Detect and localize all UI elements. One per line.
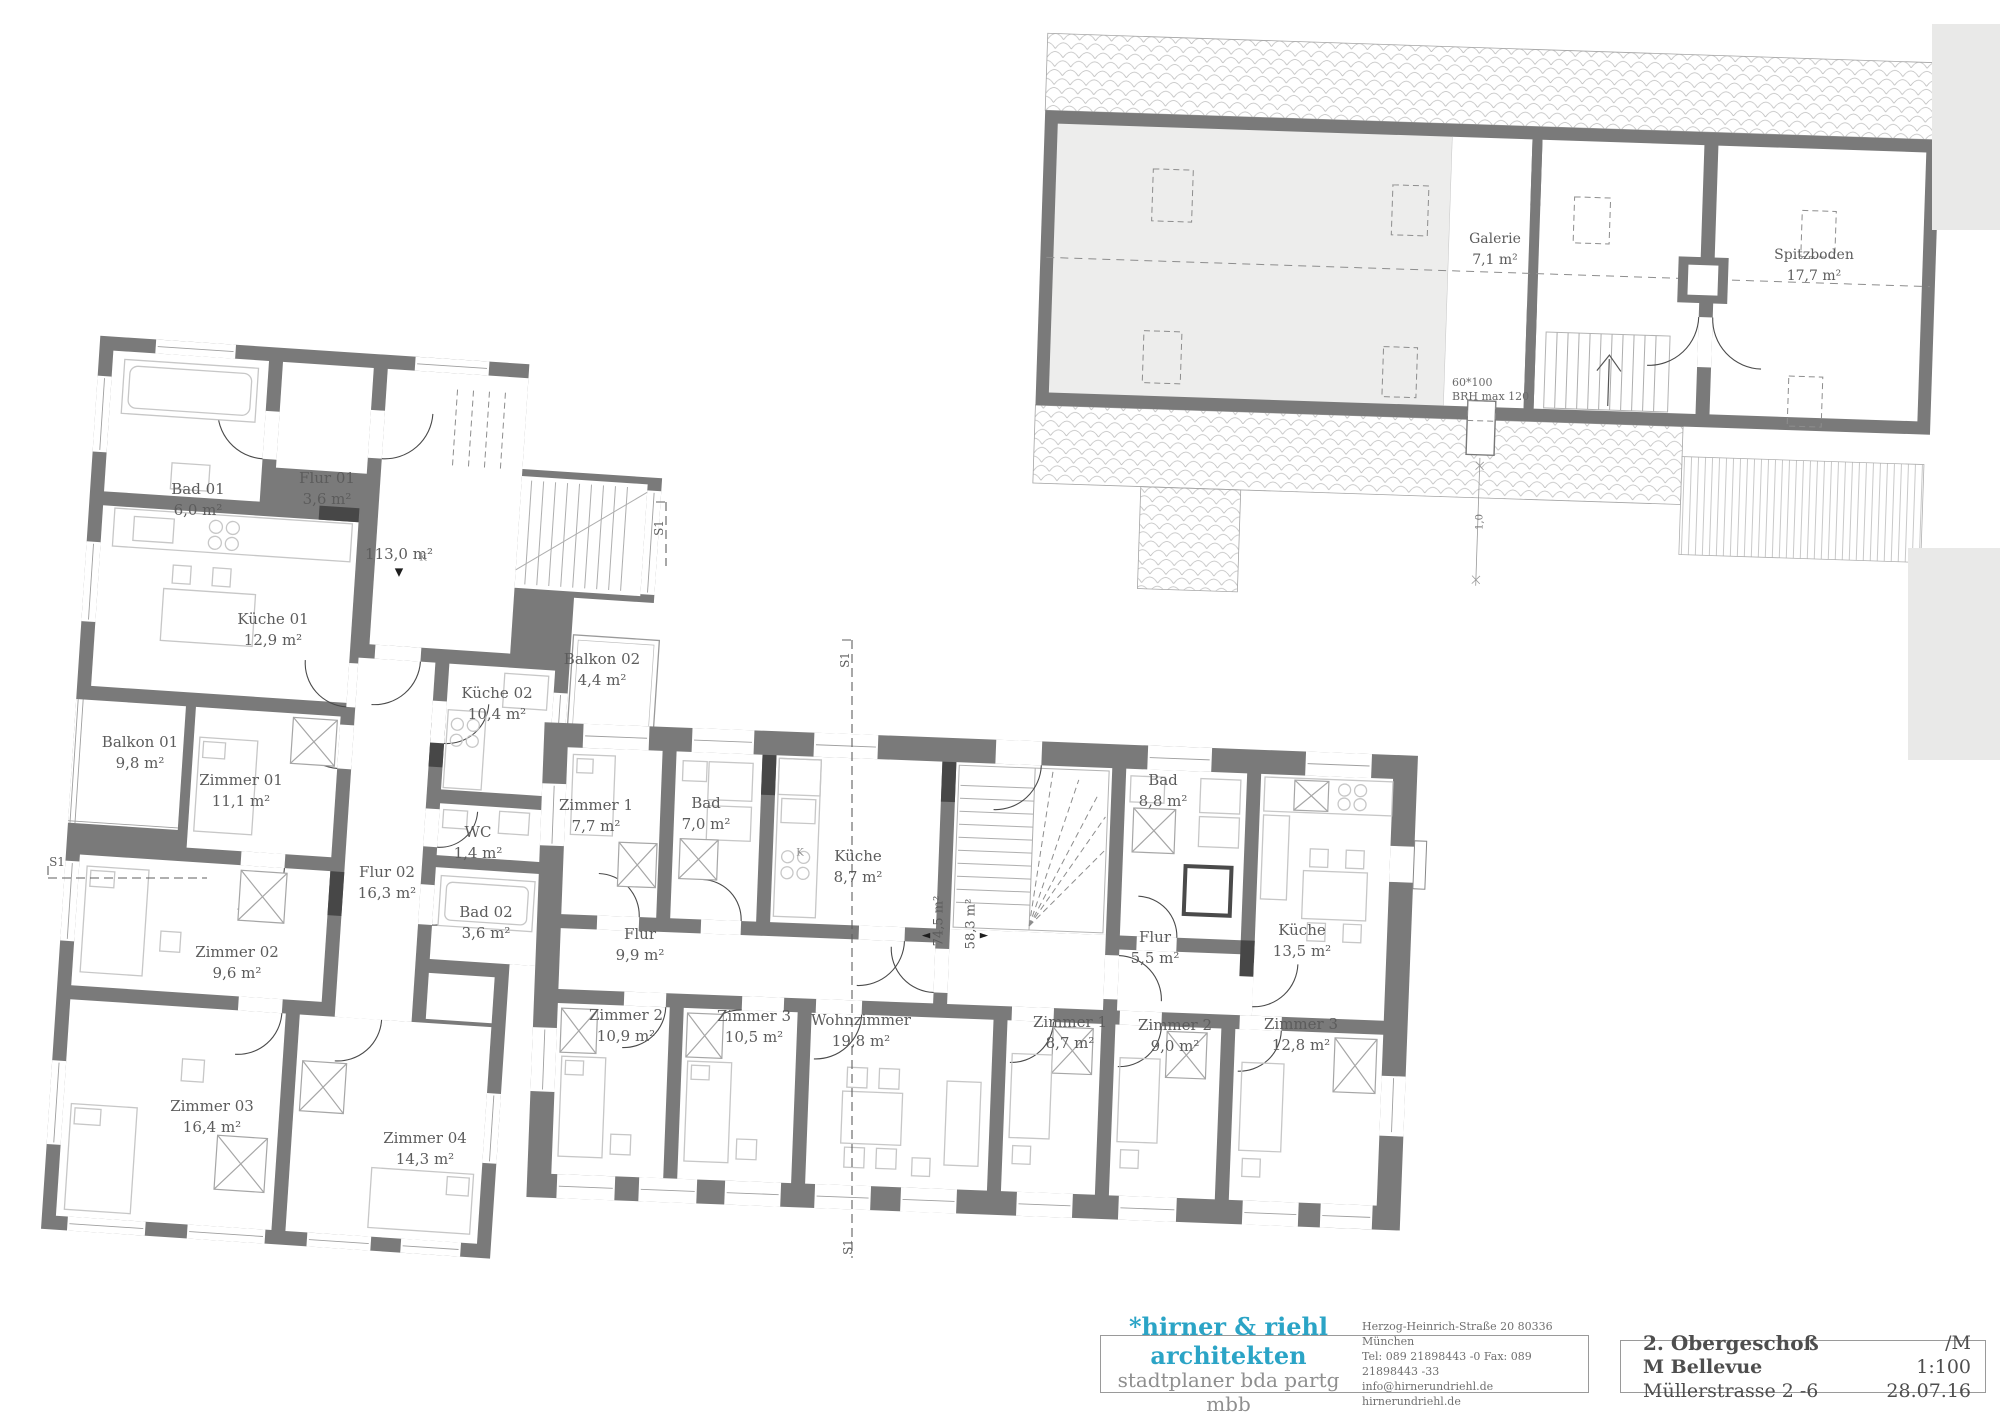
room-m-bad-left [670, 751, 762, 921]
project-address: Müllerstrasse 2 -6 [1643, 1380, 1818, 1402]
firm-identity: *hirner & riehl architekten stadtplaner … [1101, 1312, 1356, 1414]
firm-address: Herzog-Heinrich-Straße 20 80336 München … [1356, 1319, 1588, 1409]
label-zimmer-03: Zimmer 03 16,4 m² [170, 1096, 254, 1138]
label-flur-01: Flur 01 3,6 m² [299, 468, 355, 510]
entry-marker-left: ◄ [922, 929, 930, 942]
attic-void [1049, 124, 1453, 406]
label-total-area-745: 74,5 m² [932, 896, 947, 947]
label-galerie: Galerie 7,1 m² [1469, 229, 1521, 271]
firm-subtitle: stadtplaner bda partg mbb [1101, 1368, 1356, 1414]
neighbor-building [1932, 24, 2000, 230]
label-m-zimmer3-right: Zimmer 3 12,8 m² [1264, 1014, 1338, 1056]
title-block-firm: *hirner & riehl architekten stadtplaner … [1100, 1335, 1589, 1393]
label-dimension: 1,0 [1475, 514, 1486, 530]
section-label-s1-mid-bottom: S1 [841, 1239, 855, 1255]
firm-name: *hirner & riehl architekten [1101, 1312, 1356, 1370]
label-m-bad-right: Bad 8,8 m² [1139, 770, 1188, 812]
scale-and-date: /M 1:100 28.07.16 [1886, 1331, 1971, 1403]
label-m-kueche-left: Küche 8,7 m² [834, 846, 883, 888]
title-block-project: 2. Obergeschoß M Bellevue Müllerstrasse … [1620, 1340, 1986, 1393]
label-zimmer-01: Zimmer 01 11,1 m² [199, 770, 283, 812]
room-flur-01 [276, 362, 374, 474]
label-kueche-02: Küche 02 10,4 m² [461, 683, 532, 725]
label-zimmer-02: Zimmer 02 9,6 m² [195, 942, 279, 984]
entry-marker-right: ► [980, 929, 988, 942]
label-bad-01: Bad 01 6,0 m² [171, 479, 224, 521]
label-m-zimmer1-left: Zimmer 1 7,7 m² [559, 795, 633, 837]
drawing-date: 28.07.16 [1886, 1379, 1971, 1403]
kitchen-marker-2: K [796, 848, 803, 859]
project-name: M Bellevue [1643, 1356, 1762, 1378]
plan-drawing [0, 0, 2000, 1414]
entry-marker-down: ▼ [395, 566, 403, 579]
label-spitzboden: Spitzboden 17,7 m² [1774, 245, 1854, 287]
label-bad-02: Bad 02 3,6 m² [459, 902, 512, 944]
terrace-roof [1679, 457, 1924, 563]
label-balkon-01: Balkon 01 9,8 m² [102, 732, 178, 774]
room-m-kueche-left [770, 755, 942, 928]
middle-building [526, 722, 1430, 1231]
label-m-bad-left: Bad 7,0 m² [682, 793, 731, 835]
label-m-zimmer2-right: Zimmer 2 9,0 m² [1138, 1015, 1212, 1057]
address-line-1: Herzog-Heinrich-Straße 20 80336 München [1362, 1319, 1588, 1349]
section-label-s1-upper: S1 [652, 520, 666, 536]
project-title: M Bellevue Müllerstrasse 2 -6 [1643, 1355, 1886, 1403]
room-kueche-01 [91, 505, 358, 703]
stair-annex [515, 476, 648, 596]
label-m-zimmer1-right: Zimmer 1 8,7 m² [1033, 1012, 1107, 1054]
floor-title: 2. Obergeschoß [1643, 1331, 1886, 1355]
neighbor-building [1908, 548, 2000, 760]
attic-stairs [1544, 332, 1670, 412]
label-window-note: 60*100 BRH max 120 [1452, 376, 1529, 404]
label-m-zimmer2-left: Zimmer 2 10,9 m² [589, 1005, 663, 1047]
label-wc: WC 1,4 m² [454, 822, 503, 864]
floor-plan-sheet: Bad 01 6,0 m² Flur 01 3,6 m² 113,0 m² ▼ … [0, 0, 2000, 1414]
kitchen-marker-1: K [419, 553, 426, 564]
label-kueche-01: Küche 01 12,9 m² [237, 609, 308, 651]
label-m-flur-left: Flur 9,9 m² [616, 924, 665, 966]
label-flur-02: Flur 02 16,3 m² [358, 862, 416, 904]
section-label-s1-left: S1 [49, 855, 65, 869]
label-m-zimmer3-left: Zimmer 3 10,5 m² [717, 1006, 791, 1048]
attic-window-60x100 [1466, 400, 1496, 455]
section-label-s1-mid-top: S1 [838, 652, 852, 668]
address-line-2: Tel: 089 21898443 -0 Fax: 089 21898443 -… [1362, 1349, 1588, 1379]
address-line-3: info@hirnerundriehl.de hirnerundriehl.de [1362, 1379, 1588, 1409]
label-m-wohnzimmer: Wohnzimmer 19,8 m² [811, 1010, 911, 1052]
label-m-flur-right: Flur 5,5 m² [1131, 927, 1180, 969]
label-total-area-583: 58,3 m² [964, 899, 979, 950]
label-zimmer-04: Zimmer 04 14,3 m² [383, 1128, 467, 1170]
label-balkon-02: Balkon 02 4,4 m² [564, 649, 640, 691]
roof-dormer [1137, 487, 1240, 592]
stair-hall-113 [369, 369, 528, 654]
shaft [1184, 866, 1232, 916]
attic-plan [1029, 33, 1942, 614]
project-info: 2. Obergeschoß M Bellevue Müllerstrasse … [1643, 1331, 1886, 1403]
label-m-kueche-right: Küche 13,5 m² [1273, 920, 1331, 962]
drawing-scale: /M 1:100 [1886, 1331, 1971, 1379]
